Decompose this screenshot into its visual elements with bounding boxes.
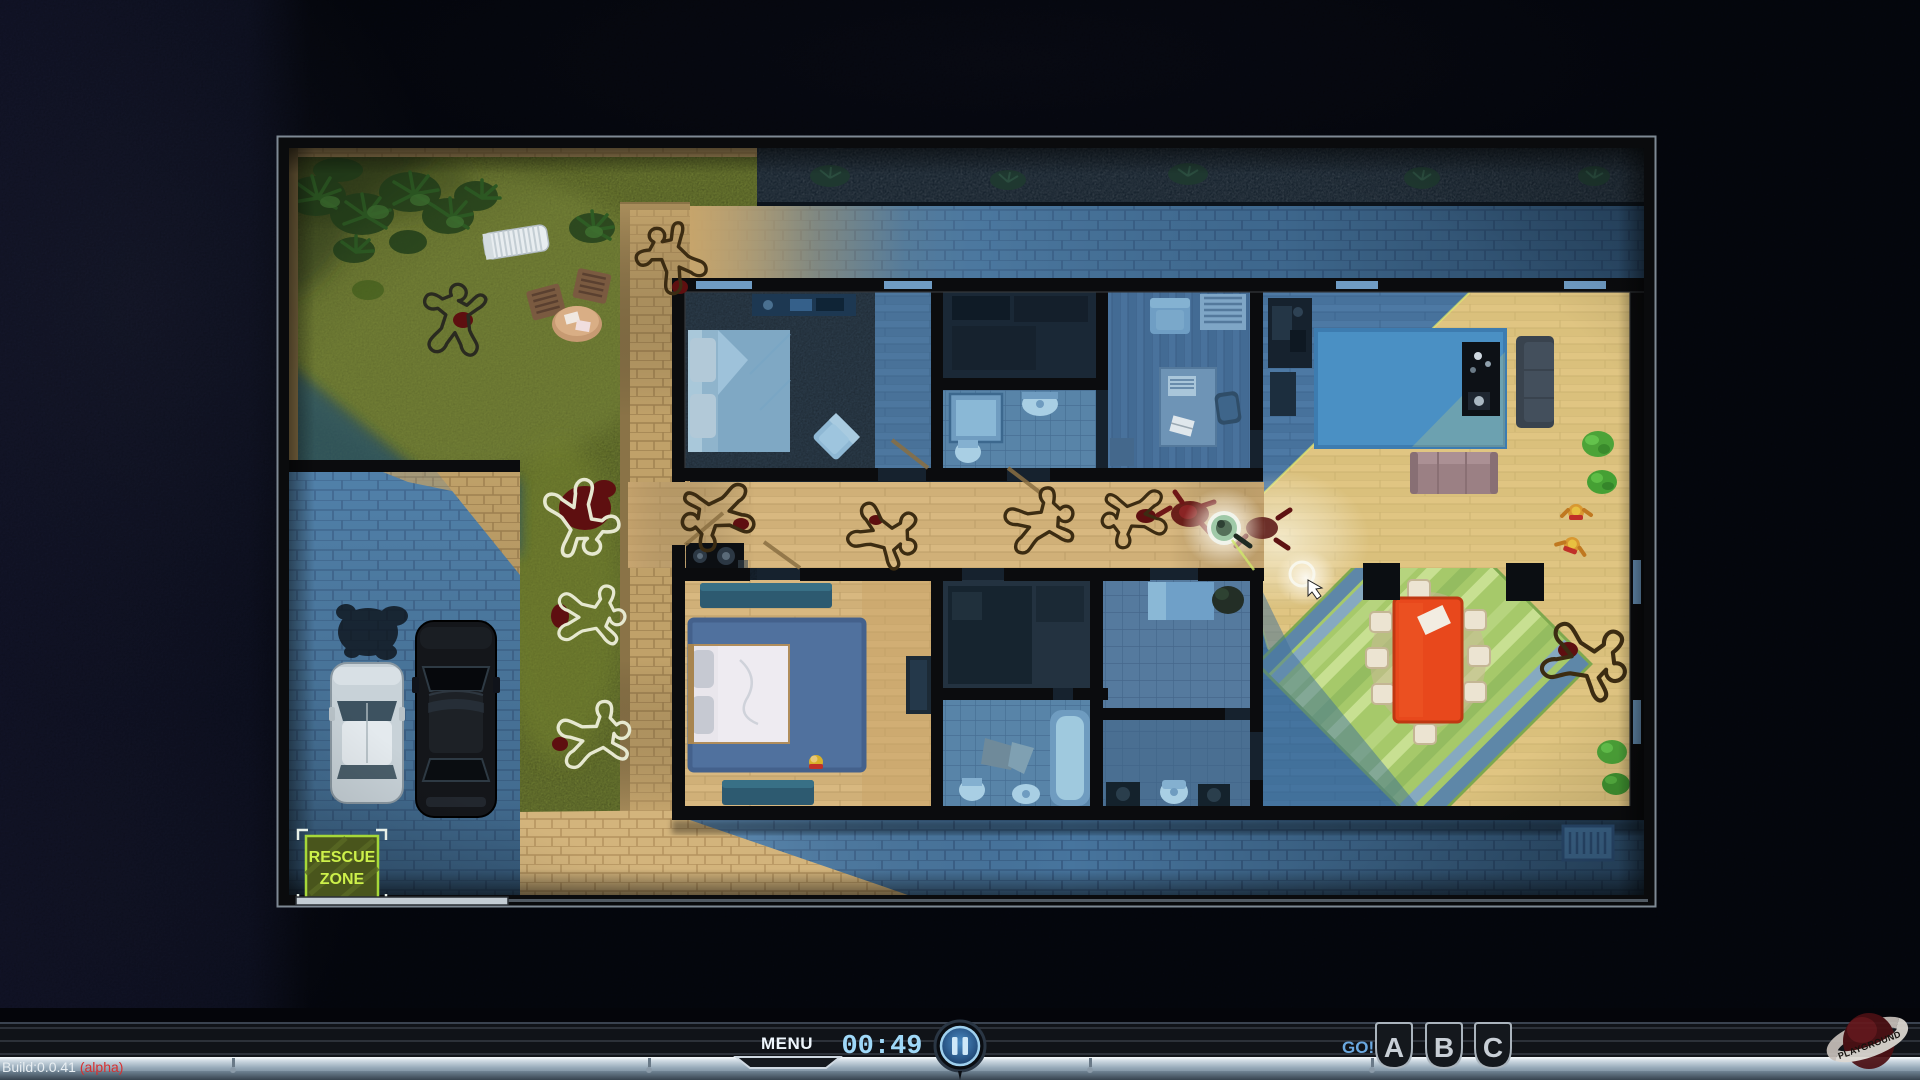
- svg-text:C: C: [1483, 1032, 1503, 1063]
- svg-text:Build:0.0.41 (alpha): Build:0.0.41 (alpha): [2, 1059, 123, 1075]
- svg-text:MENU: MENU: [761, 1034, 813, 1053]
- svg-text:A: A: [1384, 1032, 1404, 1063]
- svg-text:00:49: 00:49: [841, 1032, 922, 1062]
- svg-text:B: B: [1434, 1032, 1454, 1063]
- svg-text:RESCUE: RESCUE: [309, 849, 376, 866]
- svg-text:ZONE: ZONE: [320, 871, 365, 888]
- svg-text:GO!: GO!: [1342, 1038, 1374, 1057]
